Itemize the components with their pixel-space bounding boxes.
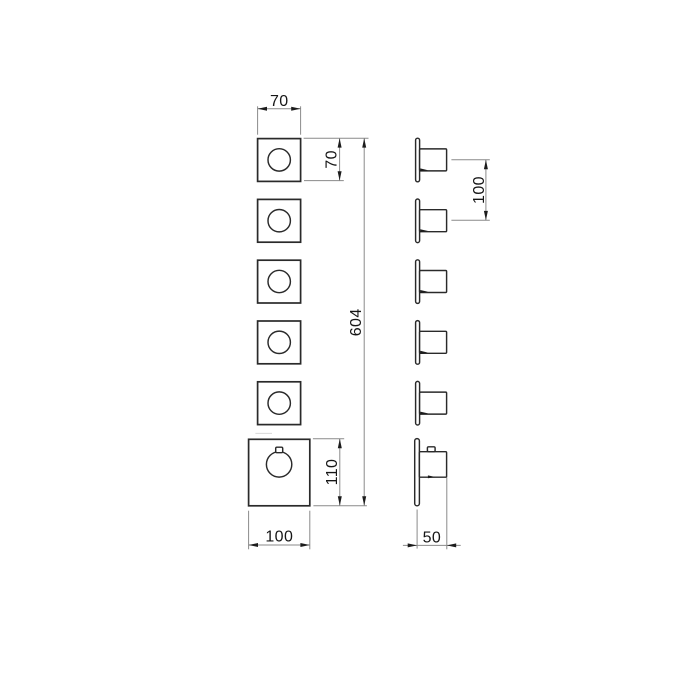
- svg-text:100: 100: [265, 529, 293, 546]
- svg-text:70: 70: [270, 93, 289, 110]
- svg-text:50: 50: [423, 530, 442, 547]
- svg-text:70: 70: [324, 150, 341, 169]
- svg-text:604: 604: [348, 308, 365, 336]
- svg-text:110: 110: [324, 459, 341, 486]
- svg-text:100: 100: [471, 176, 488, 204]
